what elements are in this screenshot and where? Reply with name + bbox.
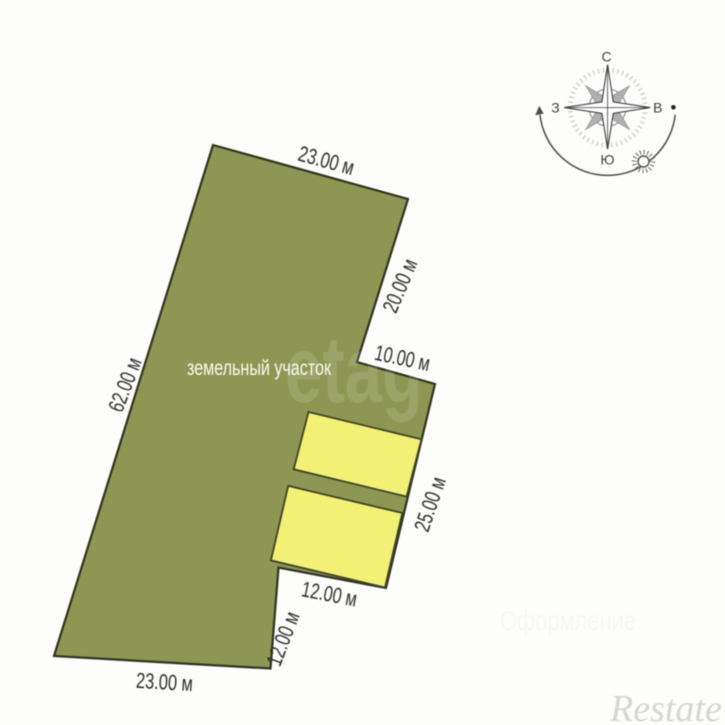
svg-text:Restate: Restate bbox=[609, 688, 722, 725]
svg-text:земельный участок: земельный участок bbox=[187, 357, 332, 380]
svg-text:Ю: Ю bbox=[600, 152, 614, 168]
svg-text:Оформление: Оформление bbox=[500, 605, 636, 636]
svg-text:В: В bbox=[653, 100, 662, 116]
svg-text:С: С bbox=[602, 49, 612, 65]
svg-text:З: З bbox=[551, 100, 559, 116]
svg-text:23.00 м: 23.00 м bbox=[135, 668, 193, 696]
